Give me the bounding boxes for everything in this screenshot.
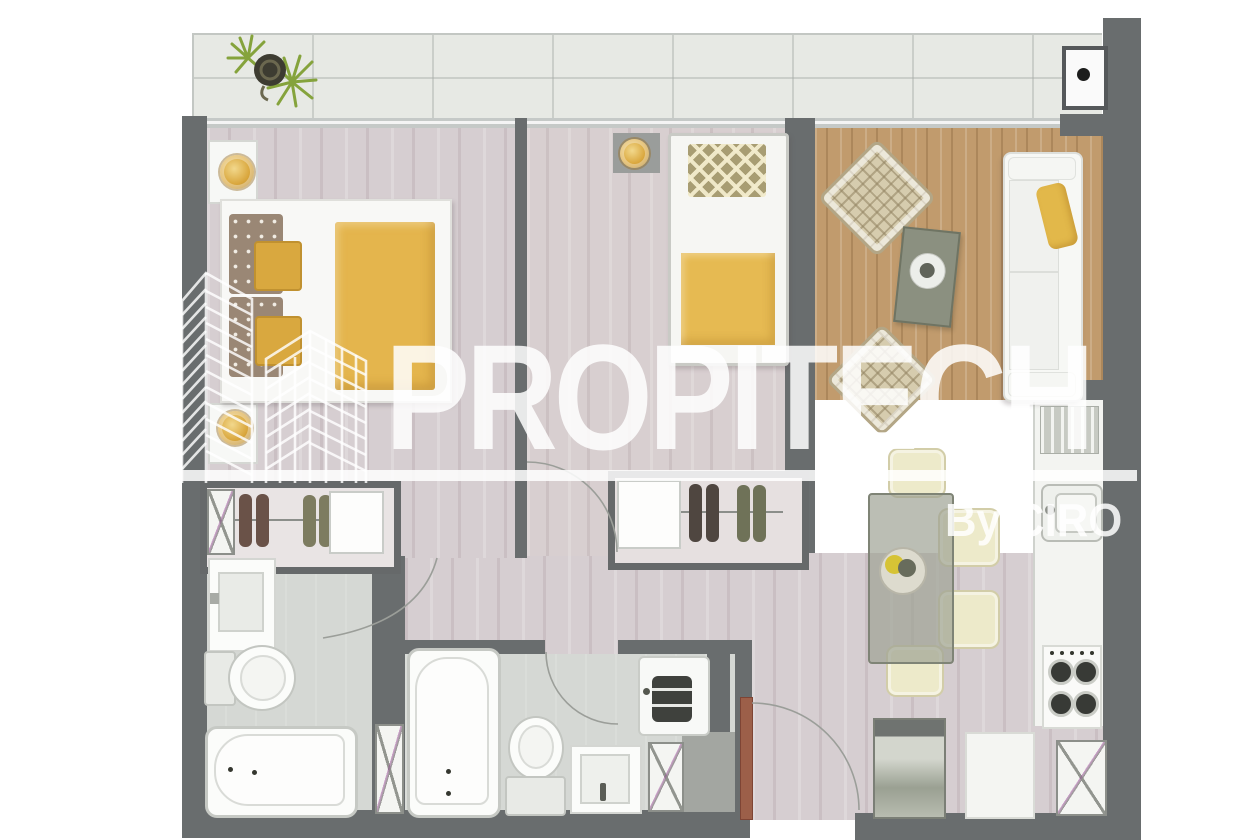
watermark-brand-text: PROPITECH: [385, 322, 1091, 472]
floor-plan-photo: PROPITECH By CIRO: [180, 0, 1141, 840]
door-arc-entrance: [752, 703, 859, 810]
door-arc-bathroom-2: [546, 652, 618, 724]
watermark-underline: [180, 470, 1137, 481]
watermark-byline-text: By CIRO: [945, 497, 1122, 543]
floor-plan-screenshot: PROPITECH By CIRO: [0, 0, 1260, 840]
watermark-buildings-icon: [180, 263, 372, 487]
door-arc-bathroom-1: [323, 558, 437, 638]
potted-plant-icon: [228, 36, 316, 106]
